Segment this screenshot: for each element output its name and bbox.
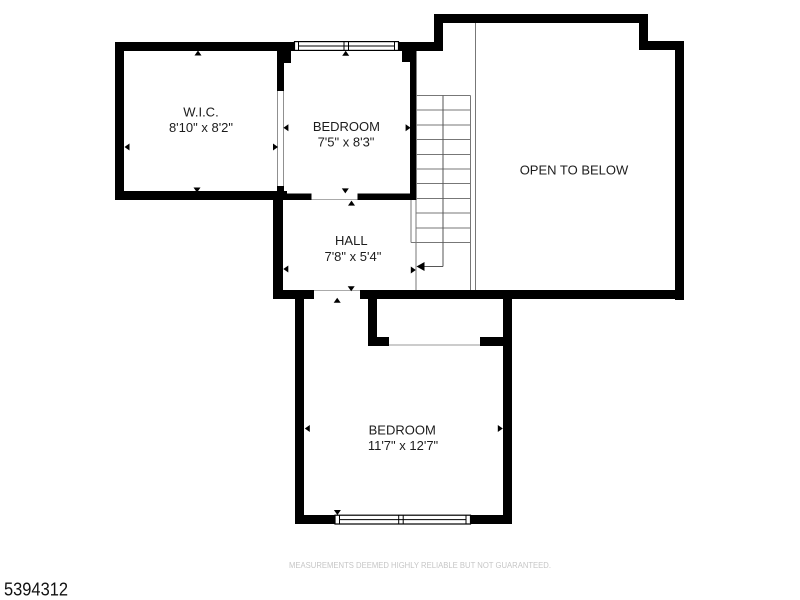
svg-text:11'7" x 12'7": 11'7" x 12'7": [368, 438, 439, 453]
svg-text:HALL: HALL: [335, 233, 368, 248]
svg-text:7'5" x 8'3": 7'5" x 8'3": [318, 135, 375, 150]
svg-text:BEDROOM: BEDROOM: [313, 119, 380, 134]
svg-text:W.I.C.: W.I.C.: [183, 105, 218, 120]
svg-text:7'8" x 5'4": 7'8" x 5'4": [324, 249, 381, 264]
svg-text:BEDROOM: BEDROOM: [369, 422, 436, 437]
svg-text:5394312: 5394312: [4, 580, 68, 600]
svg-text:OPEN TO BELOW: OPEN TO BELOW: [520, 163, 629, 178]
svg-text:MEASUREMENTS DEEMED HIGHLY REL: MEASUREMENTS DEEMED HIGHLY RELIABLE BUT …: [289, 560, 551, 570]
svg-text:8'10" x 8'2": 8'10" x 8'2": [169, 120, 233, 135]
